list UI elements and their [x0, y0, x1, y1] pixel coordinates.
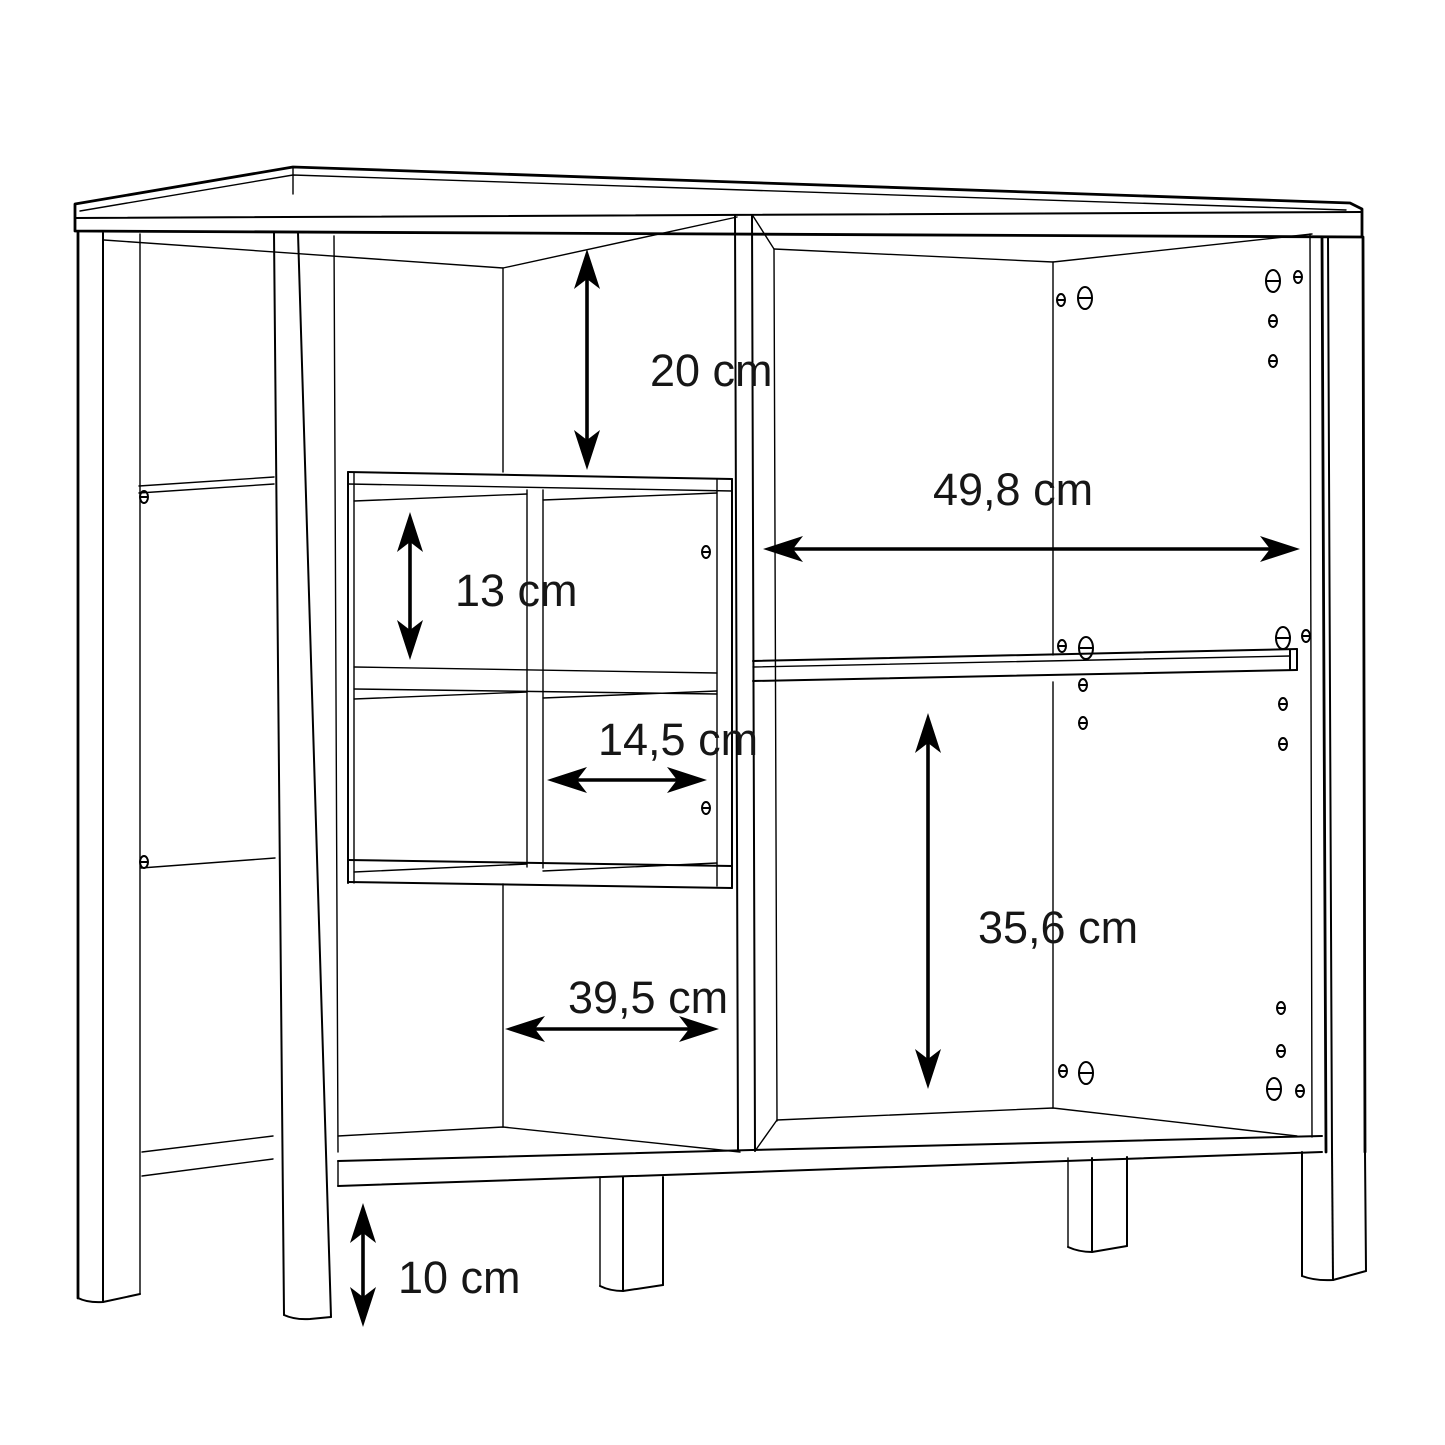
- label-top-compartment-height: 20 cm: [650, 345, 773, 396]
- label-right-compartment-width: 49,8 cm: [933, 464, 1093, 515]
- dim-top-compartment-height: 20 cm: [574, 249, 773, 470]
- tabletop: [75, 167, 1362, 237]
- label-cube-cell-height: 13 cm: [455, 565, 578, 616]
- screw-holes: [1057, 270, 1310, 1100]
- label-leg-height: 10 cm: [398, 1252, 521, 1303]
- interior-floor-edges: [338, 1108, 1297, 1152]
- dim-left-lower-compartment-width: 39,5 cm: [505, 972, 728, 1042]
- right-back-panel-edge: [774, 249, 777, 1121]
- dim-cube-cell-width: 14,5 cm: [547, 714, 758, 793]
- mid-right-leg: [1068, 1157, 1127, 1252]
- right-side-panel: [1310, 234, 1365, 1152]
- cube-left-side-panel: [139, 477, 275, 868]
- diagram-canvas: 20 cm 13 cm 14,5 cm 49,8 cm 35,6 cm 39,5…: [0, 0, 1445, 1445]
- back-left-post: [274, 233, 338, 1319]
- mid-left-leg: [600, 1177, 663, 1291]
- dim-right-compartment-width: 49,8 cm: [763, 464, 1300, 562]
- label-cube-cell-width: 14,5 cm: [598, 714, 758, 765]
- base-panel: [338, 1136, 1322, 1186]
- dim-cube-cell-height: 13 cm: [397, 512, 578, 660]
- label-right-lower-compartment-height: 35,6 cm: [978, 902, 1138, 953]
- dim-right-lower-compartment-height: 35,6 cm: [915, 713, 1138, 1089]
- far-right-leg: [1302, 1152, 1366, 1280]
- dim-leg-height: 10 cm: [350, 1203, 521, 1327]
- cabinet-dimension-diagram: 20 cm 13 cm 14,5 cm 49,8 cm 35,6 cm 39,5…: [0, 0, 1445, 1445]
- front-left-leg: [78, 232, 140, 1302]
- right-shelf: [753, 649, 1297, 681]
- label-left-lower-compartment-width: 39,5 cm: [568, 972, 728, 1023]
- base-left-through-view: [142, 1136, 273, 1176]
